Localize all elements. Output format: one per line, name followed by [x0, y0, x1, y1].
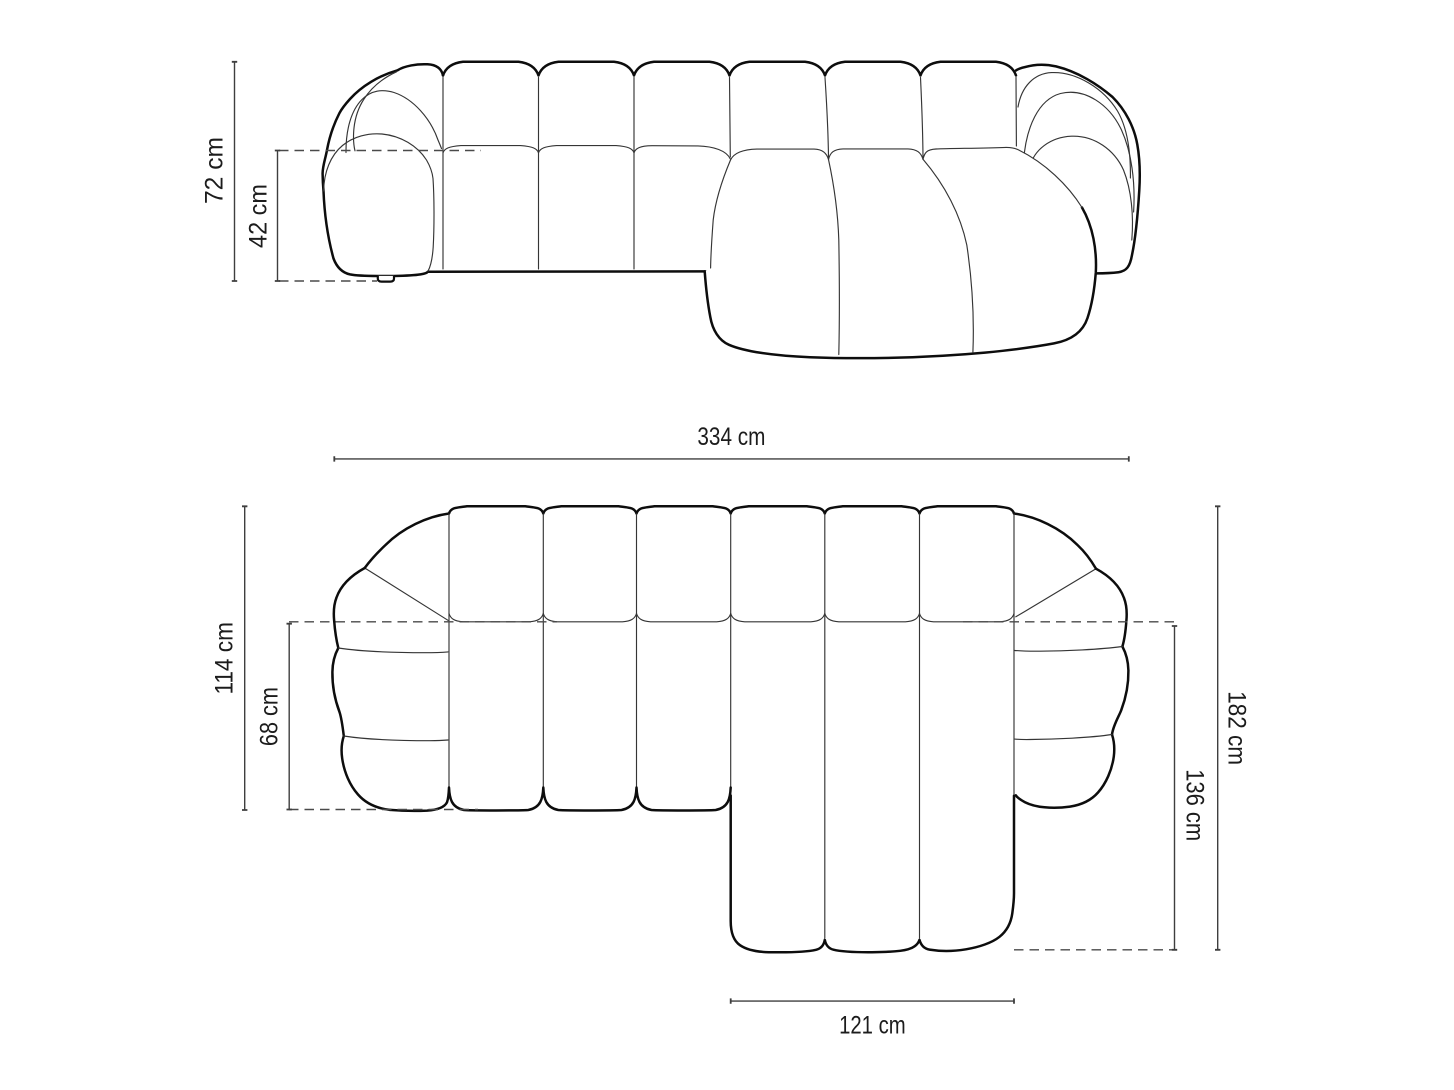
svg-text:42 cm: 42 cm	[245, 184, 273, 248]
svg-text:182 cm: 182 cm	[1223, 691, 1251, 765]
svg-text:136 cm: 136 cm	[1180, 769, 1208, 841]
svg-text:72 cm: 72 cm	[201, 137, 229, 204]
svg-text:334 cm: 334 cm	[697, 423, 765, 451]
svg-text:121 cm: 121 cm	[839, 1012, 906, 1040]
svg-text:68 cm: 68 cm	[255, 687, 283, 746]
svg-text:114 cm: 114 cm	[211, 622, 239, 695]
